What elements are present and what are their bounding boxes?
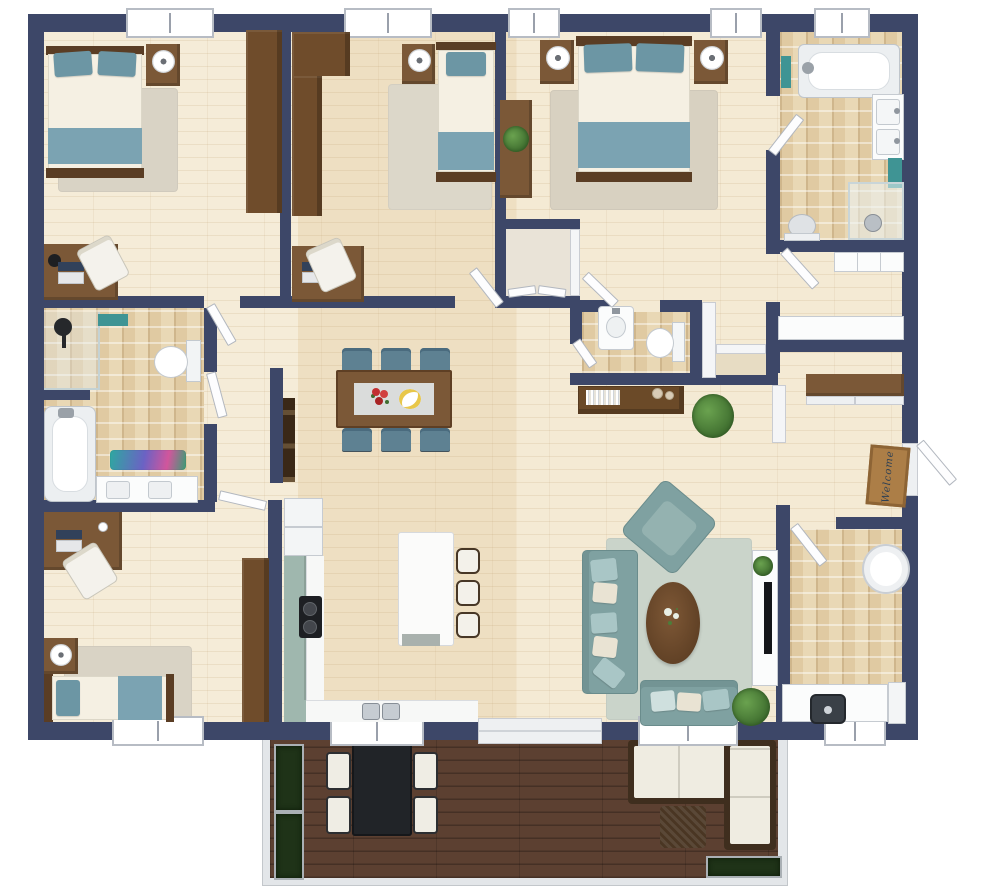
floor-plan: Welcome <box>0 0 1000 889</box>
bed-double <box>46 46 144 178</box>
wall-entry-west <box>772 385 786 443</box>
outdoor-chair <box>326 752 351 790</box>
hall-closet-shelf <box>716 344 766 354</box>
sofa <box>582 550 638 694</box>
exterior-wall-left <box>28 14 44 740</box>
wall-hall-closet <box>702 302 716 378</box>
dining-chair <box>381 348 411 371</box>
bathtub-faucet <box>802 62 814 74</box>
laptop-screen <box>58 262 84 271</box>
sink <box>148 481 172 499</box>
potted-plant <box>732 688 770 726</box>
pillow <box>590 558 618 583</box>
bar-stool <box>456 580 480 606</box>
burner <box>303 602 317 616</box>
window-master-2 <box>710 8 762 38</box>
welcome-mat: Welcome <box>865 444 910 507</box>
fridge <box>284 498 323 556</box>
pillow <box>53 51 93 78</box>
patio-door-threshold <box>478 718 602 744</box>
pillow <box>97 51 136 77</box>
faucet <box>612 308 620 314</box>
bed-double-master <box>576 36 692 182</box>
bathtub-basin <box>808 52 890 90</box>
dining-chair <box>342 348 372 371</box>
wall-ensuite-west <box>766 150 780 240</box>
table-runner <box>354 383 434 415</box>
coffee-table <box>646 582 700 664</box>
front-door <box>916 440 957 486</box>
shower-arm <box>62 334 66 348</box>
hall-console <box>283 398 295 482</box>
laptop <box>58 272 84 284</box>
window-bedroom1 <box>126 8 214 38</box>
wall-shower-partition <box>44 390 90 400</box>
faucet <box>894 108 900 114</box>
laptop-screen <box>56 530 82 539</box>
potted-plant <box>692 394 734 438</box>
dining-chair <box>381 428 411 451</box>
bed-single <box>44 674 174 722</box>
loveseat <box>640 680 738 726</box>
pillow <box>592 582 618 604</box>
sink-basin <box>606 316 626 338</box>
shower-head <box>864 214 882 232</box>
plant-on-console <box>753 556 773 576</box>
wall-laundry-north <box>836 517 904 529</box>
outdoor-chair <box>413 796 438 834</box>
exterior-wall-right <box>902 14 918 443</box>
wall-laundry-north-stub <box>776 517 790 529</box>
flowers <box>372 388 380 396</box>
planter-box <box>706 856 782 878</box>
planter-box <box>274 812 304 880</box>
island-base-shadow <box>402 634 440 646</box>
kitchen-island <box>398 532 454 646</box>
sink-basin <box>362 703 380 720</box>
wall-master-closet-top <box>495 219 580 229</box>
toilet-tank <box>784 233 820 241</box>
sink <box>106 481 130 499</box>
wicker-ottoman <box>660 806 706 848</box>
pillow <box>56 680 80 716</box>
toilet-bowl <box>646 328 674 358</box>
burner <box>303 620 317 634</box>
pillow <box>650 690 676 712</box>
planter-box <box>274 744 304 812</box>
sectional-cushions <box>730 746 770 844</box>
pillow <box>676 692 701 712</box>
bathtub-basin <box>52 416 88 492</box>
outdoor-chair <box>326 796 351 834</box>
bar-stool <box>456 548 480 574</box>
lamp <box>152 50 175 73</box>
towel <box>781 56 791 88</box>
coffee-cup <box>98 522 108 532</box>
storage-shelves <box>834 252 904 272</box>
shower <box>44 312 100 390</box>
toilet-tank <box>186 340 201 382</box>
wall-bedroom3-east <box>268 500 282 722</box>
bath-mat <box>110 450 186 470</box>
dining-chair <box>342 428 372 451</box>
dining-chair <box>420 348 450 371</box>
pillow <box>590 612 617 634</box>
welcome-mat-text: Welcome <box>880 449 896 502</box>
window-master-1 <box>508 8 560 38</box>
toilet-bowl <box>154 346 188 378</box>
laundry-basket <box>862 544 910 594</box>
vase <box>652 388 663 399</box>
wall-below-master-closet <box>495 296 580 308</box>
wall-hall-stub <box>270 368 283 483</box>
closet-sliding-doors <box>806 396 904 405</box>
storage-counter <box>778 316 904 340</box>
faucet <box>894 138 900 144</box>
wardrobe <box>246 30 282 213</box>
table-flowers <box>664 608 672 616</box>
sink-basin <box>382 703 400 720</box>
vase <box>665 391 674 400</box>
pillow <box>636 43 685 73</box>
tv <box>764 582 772 654</box>
hall-closet-floor <box>716 354 766 375</box>
wall-bathroom2-east <box>204 424 217 502</box>
kitchen-cabinet-corner <box>284 700 306 722</box>
faucet <box>824 706 832 714</box>
kitchen-counter <box>284 700 478 722</box>
lamp <box>408 49 431 72</box>
outdoor-chair <box>413 752 438 790</box>
pillow <box>584 43 633 73</box>
entry-closet <box>806 374 904 396</box>
pillow <box>446 52 486 76</box>
outdoor-dining-table <box>352 742 412 836</box>
lamp <box>700 46 724 70</box>
wardrobe <box>292 32 350 76</box>
bathtub-faucet <box>58 408 74 418</box>
towel <box>98 314 128 326</box>
wall-master-closet-side <box>570 229 580 296</box>
window-ensuite <box>814 8 870 38</box>
pillow <box>702 688 730 711</box>
window-bedroom2 <box>344 8 432 38</box>
bed-single <box>436 42 496 182</box>
wardrobe <box>242 558 269 722</box>
wall-ensuite-west <box>766 32 780 96</box>
pillow <box>592 657 626 690</box>
pillow <box>592 636 618 659</box>
appliance <box>888 682 906 724</box>
lamp <box>546 46 570 70</box>
books <box>586 390 620 405</box>
wardrobe <box>292 76 322 216</box>
wall-storage-bottom <box>766 340 904 352</box>
bar-stool <box>456 612 480 638</box>
dining-chair <box>420 428 450 451</box>
flowers-on-dresser <box>503 126 529 152</box>
lamp <box>50 644 72 666</box>
fruit-plate <box>398 388 422 410</box>
